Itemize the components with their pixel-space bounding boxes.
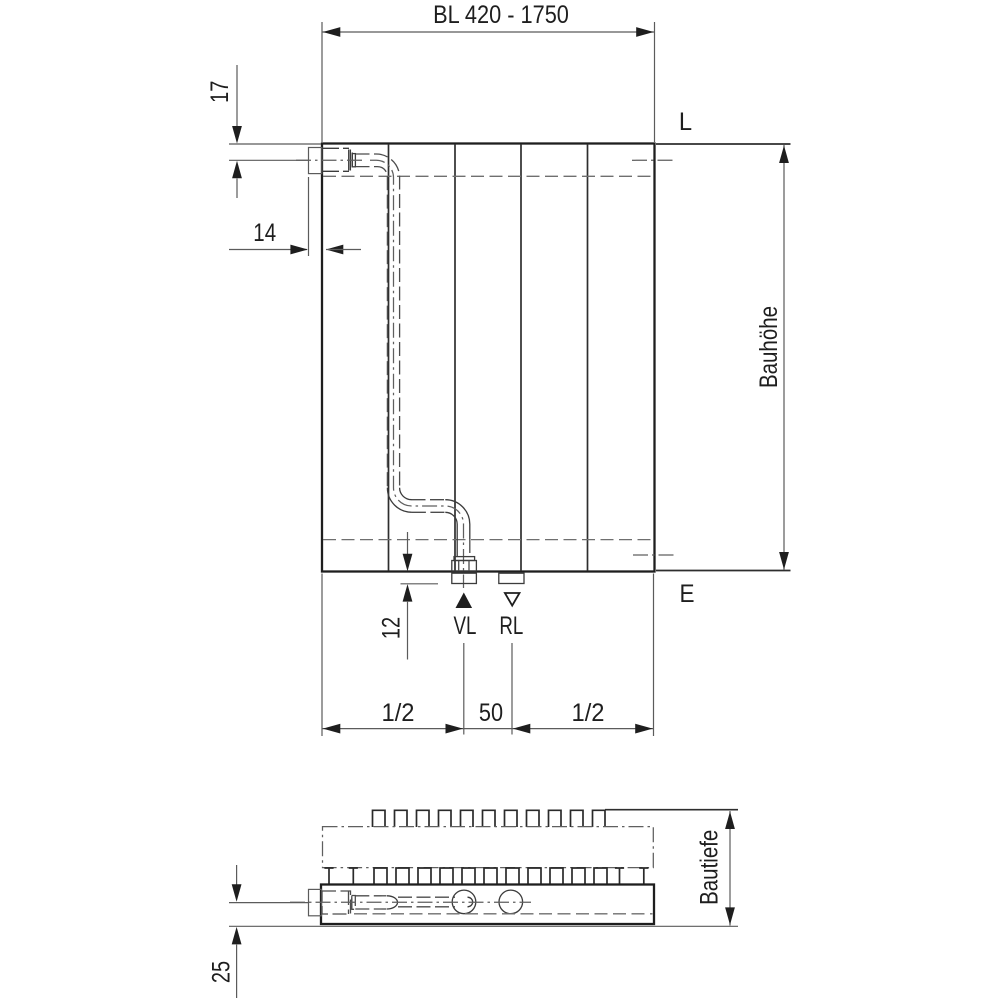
svg-text:E: E xyxy=(679,580,694,608)
svg-text:17: 17 xyxy=(206,81,234,103)
svg-text:1/2: 1/2 xyxy=(381,699,414,727)
svg-text:VL: VL xyxy=(454,611,477,639)
svg-text:Bautiefe: Bautiefe xyxy=(695,830,723,905)
svg-text:25: 25 xyxy=(207,961,235,983)
svg-text:BL 420 - 1750: BL 420 - 1750 xyxy=(433,0,569,28)
svg-text:1/2: 1/2 xyxy=(571,699,604,727)
svg-text:RL: RL xyxy=(499,611,523,639)
svg-text:14: 14 xyxy=(253,218,276,246)
svg-text:12: 12 xyxy=(377,617,405,639)
svg-text:Bauhöhe: Bauhöhe xyxy=(754,306,782,388)
svg-text:L: L xyxy=(679,108,692,136)
svg-text:50: 50 xyxy=(479,698,503,726)
